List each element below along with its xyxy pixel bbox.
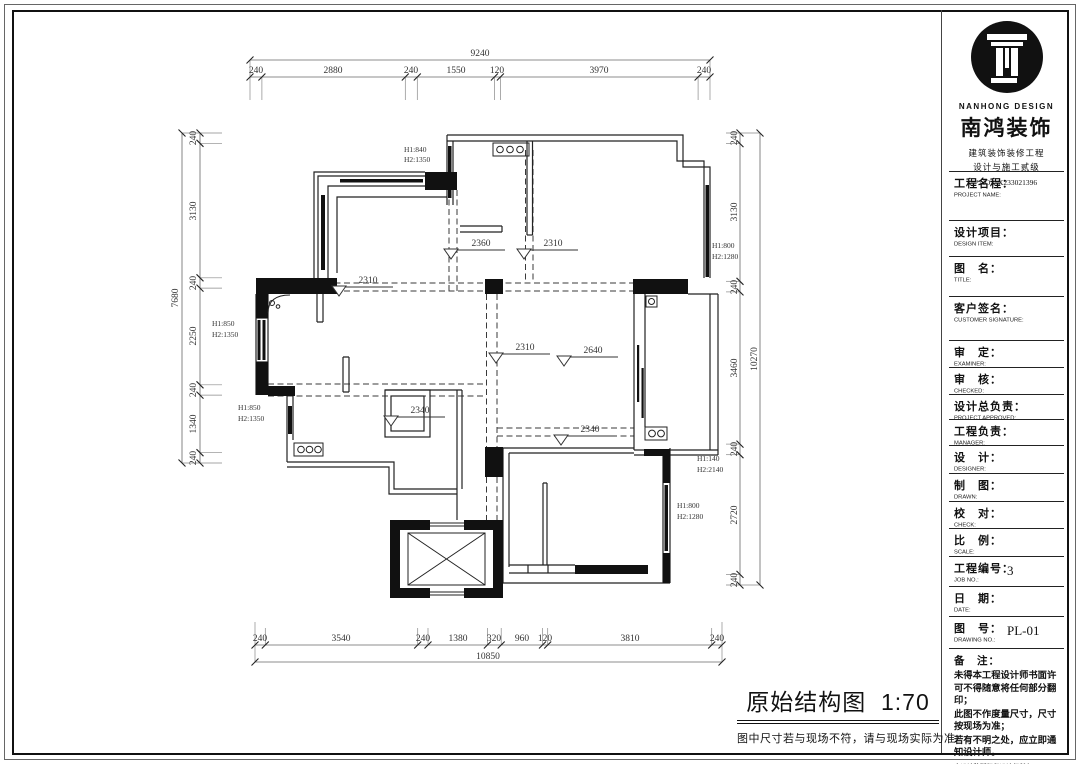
window-label: H1:850 [212,319,235,328]
window-label: H2:1350 [212,330,239,339]
job-no-value: 3 [1007,563,1014,579]
drawing-title-underline [737,720,939,724]
field-label-zh: 制 图： [954,477,1064,493]
dim-top-seg: 1550 [447,66,466,76]
field-label-en: SCALE: [954,549,1055,555]
dim-bottom-seg: 240 [710,634,725,644]
dim-bottom-seg: 3540 [332,634,351,644]
field-label-en: JOB NO.: [954,577,1055,583]
field-label-zh: 设 计： [954,449,1064,465]
elevator-shaft [390,520,503,598]
dim-top-seg: 240 [404,66,419,76]
field-label-zh: 客户签名： [954,300,1064,316]
field-label-en: DRAWN: [954,494,1055,500]
field-label-en: CUSTOMER SIGNATURE: [954,317,1055,323]
dim-bottom-seg: 240 [253,634,268,644]
dim-left-seg: 2250 [189,326,199,345]
field-examiner: 审 定： EXAMINER: [949,341,1064,368]
field-project-approved: 设计总负责： PROJECT APPROVED: [949,395,1064,420]
field-label-en: DATE: [954,607,1055,613]
dim-left-total: 7680 [171,288,181,307]
window-label: H1:800 [677,501,700,510]
field-label-zh: 审 定： [954,344,1064,360]
field-drawing-no: 图 号： DRAWING NO.: PL-01 [949,617,1064,649]
field-checked: 审 核： CHECKED: [949,368,1064,395]
dim-bottom-seg: 120 [538,634,553,644]
company-logo-icon [970,20,1044,94]
field-project-name: 工程名程： PROJECT NAME: [949,172,1064,221]
window-label: H1:140 [697,454,720,463]
dim-top-seg: 240 [249,66,264,76]
interior-dim: 2310 [544,239,563,249]
dim-bottom-seg: 320 [487,634,502,644]
field-label-zh: 工程负责： [954,423,1064,439]
brand-name-en: NANHONG DESIGN [949,102,1064,111]
drawing-sheet: 9240 240 2880 240 1550 120 3970 240 1085… [0,0,1080,764]
notes-line: 若有不明之处，应立即通知设计师。 [954,734,1060,759]
notes-label: 备 注： [954,653,1060,668]
dim-left-seg: 240 [189,131,199,146]
dim-right-seg: 240 [730,280,740,295]
field-design-item: 设计项目： DESIGN ITEM: [949,221,1064,257]
field-label-zh: 设计总负责： [954,398,1064,414]
window-label: H2:1350 [238,414,265,423]
field-title: 图 名： TITLE: [949,257,1064,297]
window-label: H1:800 [712,241,735,250]
company-logo-area: NANHONG DESIGN 南鸿装饰 建筑装饰装修工程 设计与施工贰级 *NO… [949,12,1064,172]
field-label-en: DRAWING NO.: [954,637,1055,643]
interior-dim: 2640 [584,346,603,356]
drawing-title-note: 图中尺寸若与现场不符，请与现场实际为准 [737,730,939,746]
field-label-en: TITLE: [954,277,1055,283]
floor-plan: 9240 240 2880 240 1550 120 3970 240 1085… [0,0,1080,764]
dim-right-total: 10270 [750,347,760,371]
brand-name-zh: 南鸿装饰 [949,112,1064,142]
dim-right-seg: 240 [730,442,740,457]
field-label-zh: 设计项目： [954,224,1064,240]
field-manager: 工程负责： MANAGER: [949,420,1064,446]
window-label: H2:1280 [677,512,704,521]
dim-top-seg: 3970 [590,66,609,76]
field-label-zh: 比 例： [954,532,1064,548]
brand-line1: 建筑装饰装修工程 [949,147,1064,159]
dim-right-seg: 3460 [730,358,740,377]
field-label-en: DESIGNER: [954,466,1055,472]
notes-line: 此图不作度量尺寸，尺寸按现场为准； [954,708,1060,733]
field-scale: 比 例： SCALE: [949,529,1064,557]
interior-dimension-texts: 2360 2310 2310 2310 2640 2340 2340 [359,239,603,435]
drawing-title-area: 原始结构图 1:70 图中尺寸若与现场不符，请与现场实际为准 [737,683,939,746]
interior-dim: 2310 [516,343,535,353]
dim-bottom-seg: 240 [416,634,431,644]
field-label-en: CHECKED: [954,388,1055,394]
basin-icon-bathroom [645,427,667,440]
dim-right-seg: 2720 [730,505,740,524]
field-label-en: DESIGN ITEM: [954,241,1055,247]
window-rods [258,146,710,551]
notes-copyright: 本设计稿版权归设计师所有。 [954,761,1060,764]
window-label: H2:2140 [697,465,724,474]
dim-right-seg: 240 [730,573,740,588]
drawing-no-value: PL-01 [1007,623,1040,639]
window-label: H1:850 [238,403,261,412]
dim-right-seg: 3130 [730,202,740,221]
interior-dim: 2340 [411,406,430,416]
field-label-zh: 校 对： [954,505,1064,521]
stove-icon-kitchen-top [493,143,529,156]
field-label-en: CHECK: [954,522,1055,528]
notes-section: 备 注： 未得本工程设计师书面许可不得随意将任何部分翻印； 此图不作度量尺寸，尺… [949,649,1064,764]
interior-dim: 2360 [472,239,491,249]
dim-bottom-seg: 960 [515,634,530,644]
field-customer-signature: 客户签名： CUSTOMER SIGNATURE: [949,297,1064,341]
window-label: H2:1280 [712,252,739,261]
field-label-zh: 审 核： [954,371,1064,387]
field-designer: 设 计： DESIGNER: [949,446,1064,474]
toilet-icon-bathroom [646,296,657,307]
field-label-en: EXAMINER: [954,361,1055,367]
field-date: 日 期： DATE: [949,587,1064,617]
dim-bottom-seg: 3810 [621,634,640,644]
field-label-zh: 日 期： [954,590,1064,606]
interior-dim: 2310 [359,276,378,286]
dim-right-seg: 240 [730,131,740,146]
field-drawn: 制 图： DRAWN: [949,474,1064,502]
window-label: H1:840 [404,145,427,154]
dim-left-seg: 240 [189,276,199,291]
drawing-title-scale: 1:70 [881,689,930,715]
dim-bottom-total: 10850 [476,652,500,662]
interior-dim: 2340 [581,425,600,435]
dim-left-seg: 3130 [189,201,199,220]
title-block: NANHONG DESIGN 南鸿装饰 建筑装饰装修工程 设计与施工贰级 *NO… [949,12,1064,751]
dim-top-seg: 2880 [324,66,343,76]
window-label: H2:1350 [404,155,431,164]
dim-top-seg: 240 [697,66,712,76]
field-label-zh: 图 名： [954,260,1064,276]
field-label-en: PROJECT NAME: [954,192,1055,198]
field-label-zh: 工程名程： [954,175,1064,191]
dim-top-seg: 120 [490,66,505,76]
dim-left-seg: 240 [189,451,199,466]
field-check: 校 对： CHECK: [949,502,1064,529]
dim-left-seg: 240 [189,383,199,398]
field-job-no: 工程编号： JOB NO.: 3 [949,557,1064,587]
stove-icon-kitchen-left [294,443,323,456]
dim-bottom-seg: 1380 [449,634,468,644]
sink-icon-living-corner [268,295,290,313]
drawing-title: 原始结构图 1:70 [737,683,939,717]
notes-line: 未得本工程设计师书面许可不得随意将任何部分翻印； [954,669,1060,707]
drawing-title-text: 原始结构图 [746,689,866,715]
dim-left-seg: 1340 [189,414,199,433]
window-height-labels: H1:840 H2:1350 H1:800 H2:1280 H1:850 H2:… [212,145,739,521]
dim-top-total: 9240 [471,49,490,59]
